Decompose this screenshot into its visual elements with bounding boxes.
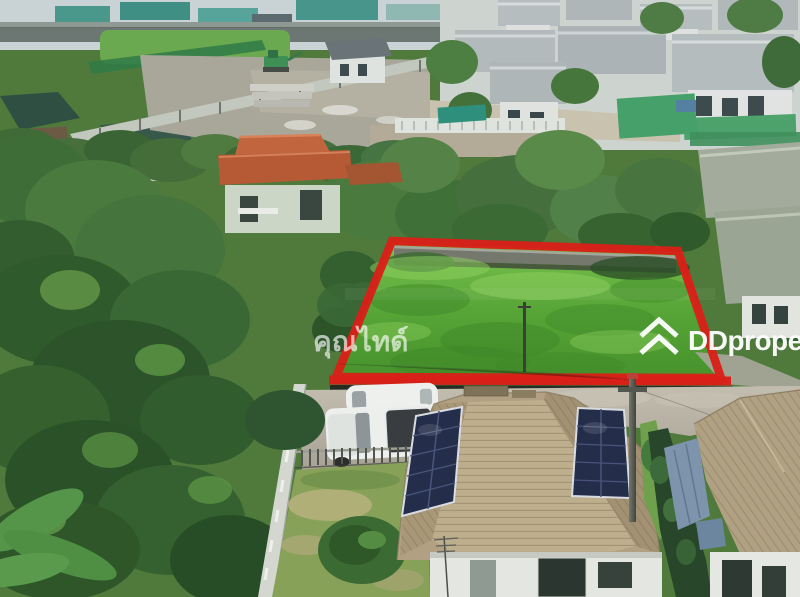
aerial-property-photo: คุณไทด์ DDproperty <box>0 0 800 597</box>
land-plot <box>338 244 720 380</box>
window <box>774 306 788 324</box>
concrete-block-pile <box>250 84 314 107</box>
ridge-vent <box>512 390 536 398</box>
agent-watermark-text: คุณไทด์ <box>313 325 408 359</box>
teal-canopy <box>438 104 487 123</box>
window <box>598 562 632 588</box>
bush <box>318 516 406 584</box>
window <box>752 304 766 324</box>
plot-outline-bottom-edge <box>329 380 731 381</box>
window <box>722 560 752 597</box>
windshield <box>355 413 371 454</box>
window <box>762 566 786 597</box>
foreground-house <box>397 386 662 597</box>
blue-tarp <box>676 100 696 112</box>
ridge-vent <box>464 386 508 396</box>
solar-panel-array-right <box>572 408 630 498</box>
house-under-construction <box>325 38 392 83</box>
balcony-rail <box>238 208 278 214</box>
tree-overhang <box>245 390 325 450</box>
window <box>538 558 586 597</box>
orange-roof-small <box>345 162 403 185</box>
photo-canvas: คุณไทด์ DDproperty <box>0 0 800 597</box>
blue-tarp-roof <box>696 518 726 550</box>
porch <box>470 560 496 597</box>
ddproperty-logo-text: DDproperty <box>688 325 800 356</box>
